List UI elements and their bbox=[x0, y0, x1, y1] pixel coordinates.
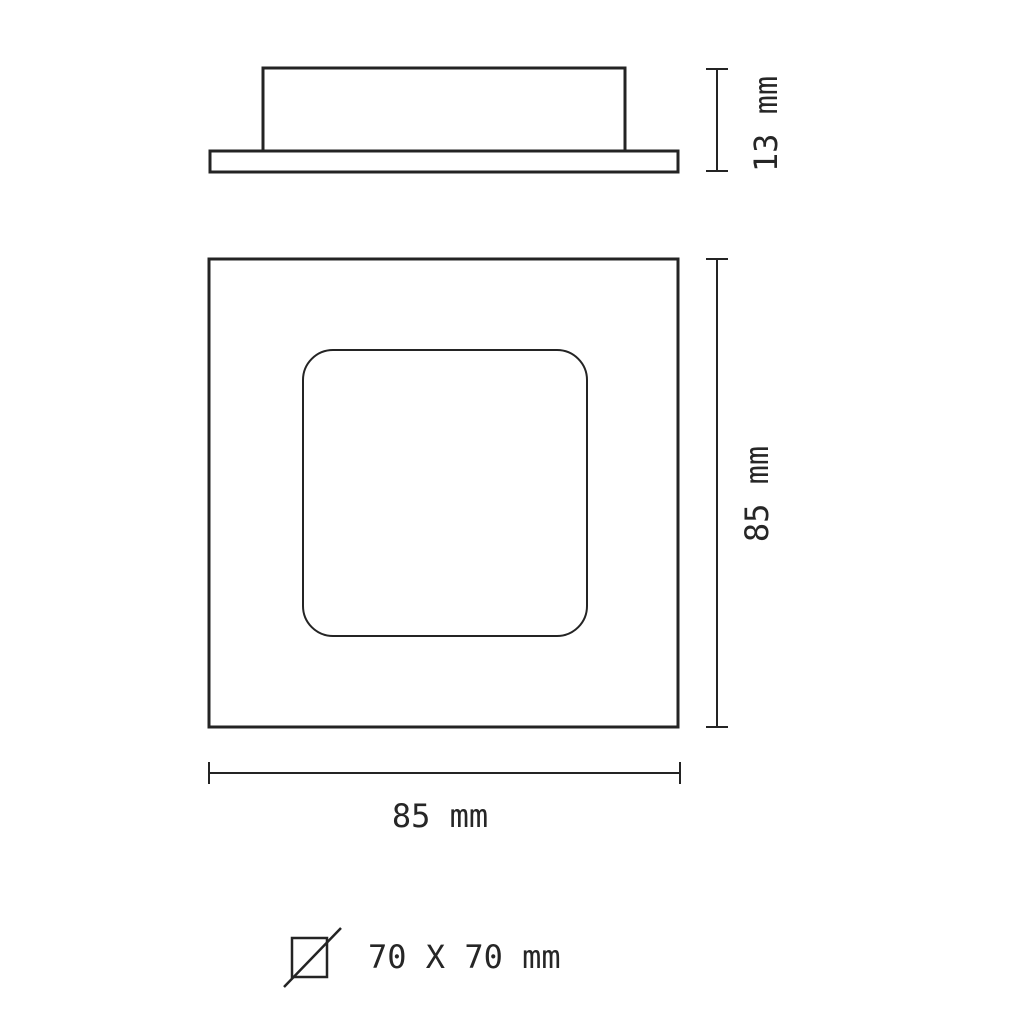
side-view-body bbox=[263, 68, 625, 151]
technical-drawing-page: 13 mm 85 mm 85 mm 70 X 70 mm bbox=[0, 0, 1024, 1024]
front-view-height-dimension-line bbox=[706, 259, 728, 727]
side-view-outline bbox=[210, 68, 678, 172]
drawing-linework bbox=[0, 0, 1024, 1024]
cutout-size-label: 70 X 70 mm bbox=[368, 941, 561, 973]
front-view-outline bbox=[209, 259, 678, 727]
front-view-height-label: 85 mm bbox=[741, 446, 773, 542]
side-view-height-dimension-line bbox=[706, 69, 728, 171]
front-view-width-label: 85 mm bbox=[392, 800, 488, 832]
front-view-frame bbox=[209, 259, 678, 727]
front-view-inner-recess bbox=[303, 350, 587, 636]
side-view-baseplate bbox=[210, 151, 678, 172]
square-cutout-icon bbox=[284, 928, 341, 987]
side-view-height-label: 13 mm bbox=[750, 76, 782, 172]
front-view-width-dimension-line bbox=[209, 762, 680, 784]
